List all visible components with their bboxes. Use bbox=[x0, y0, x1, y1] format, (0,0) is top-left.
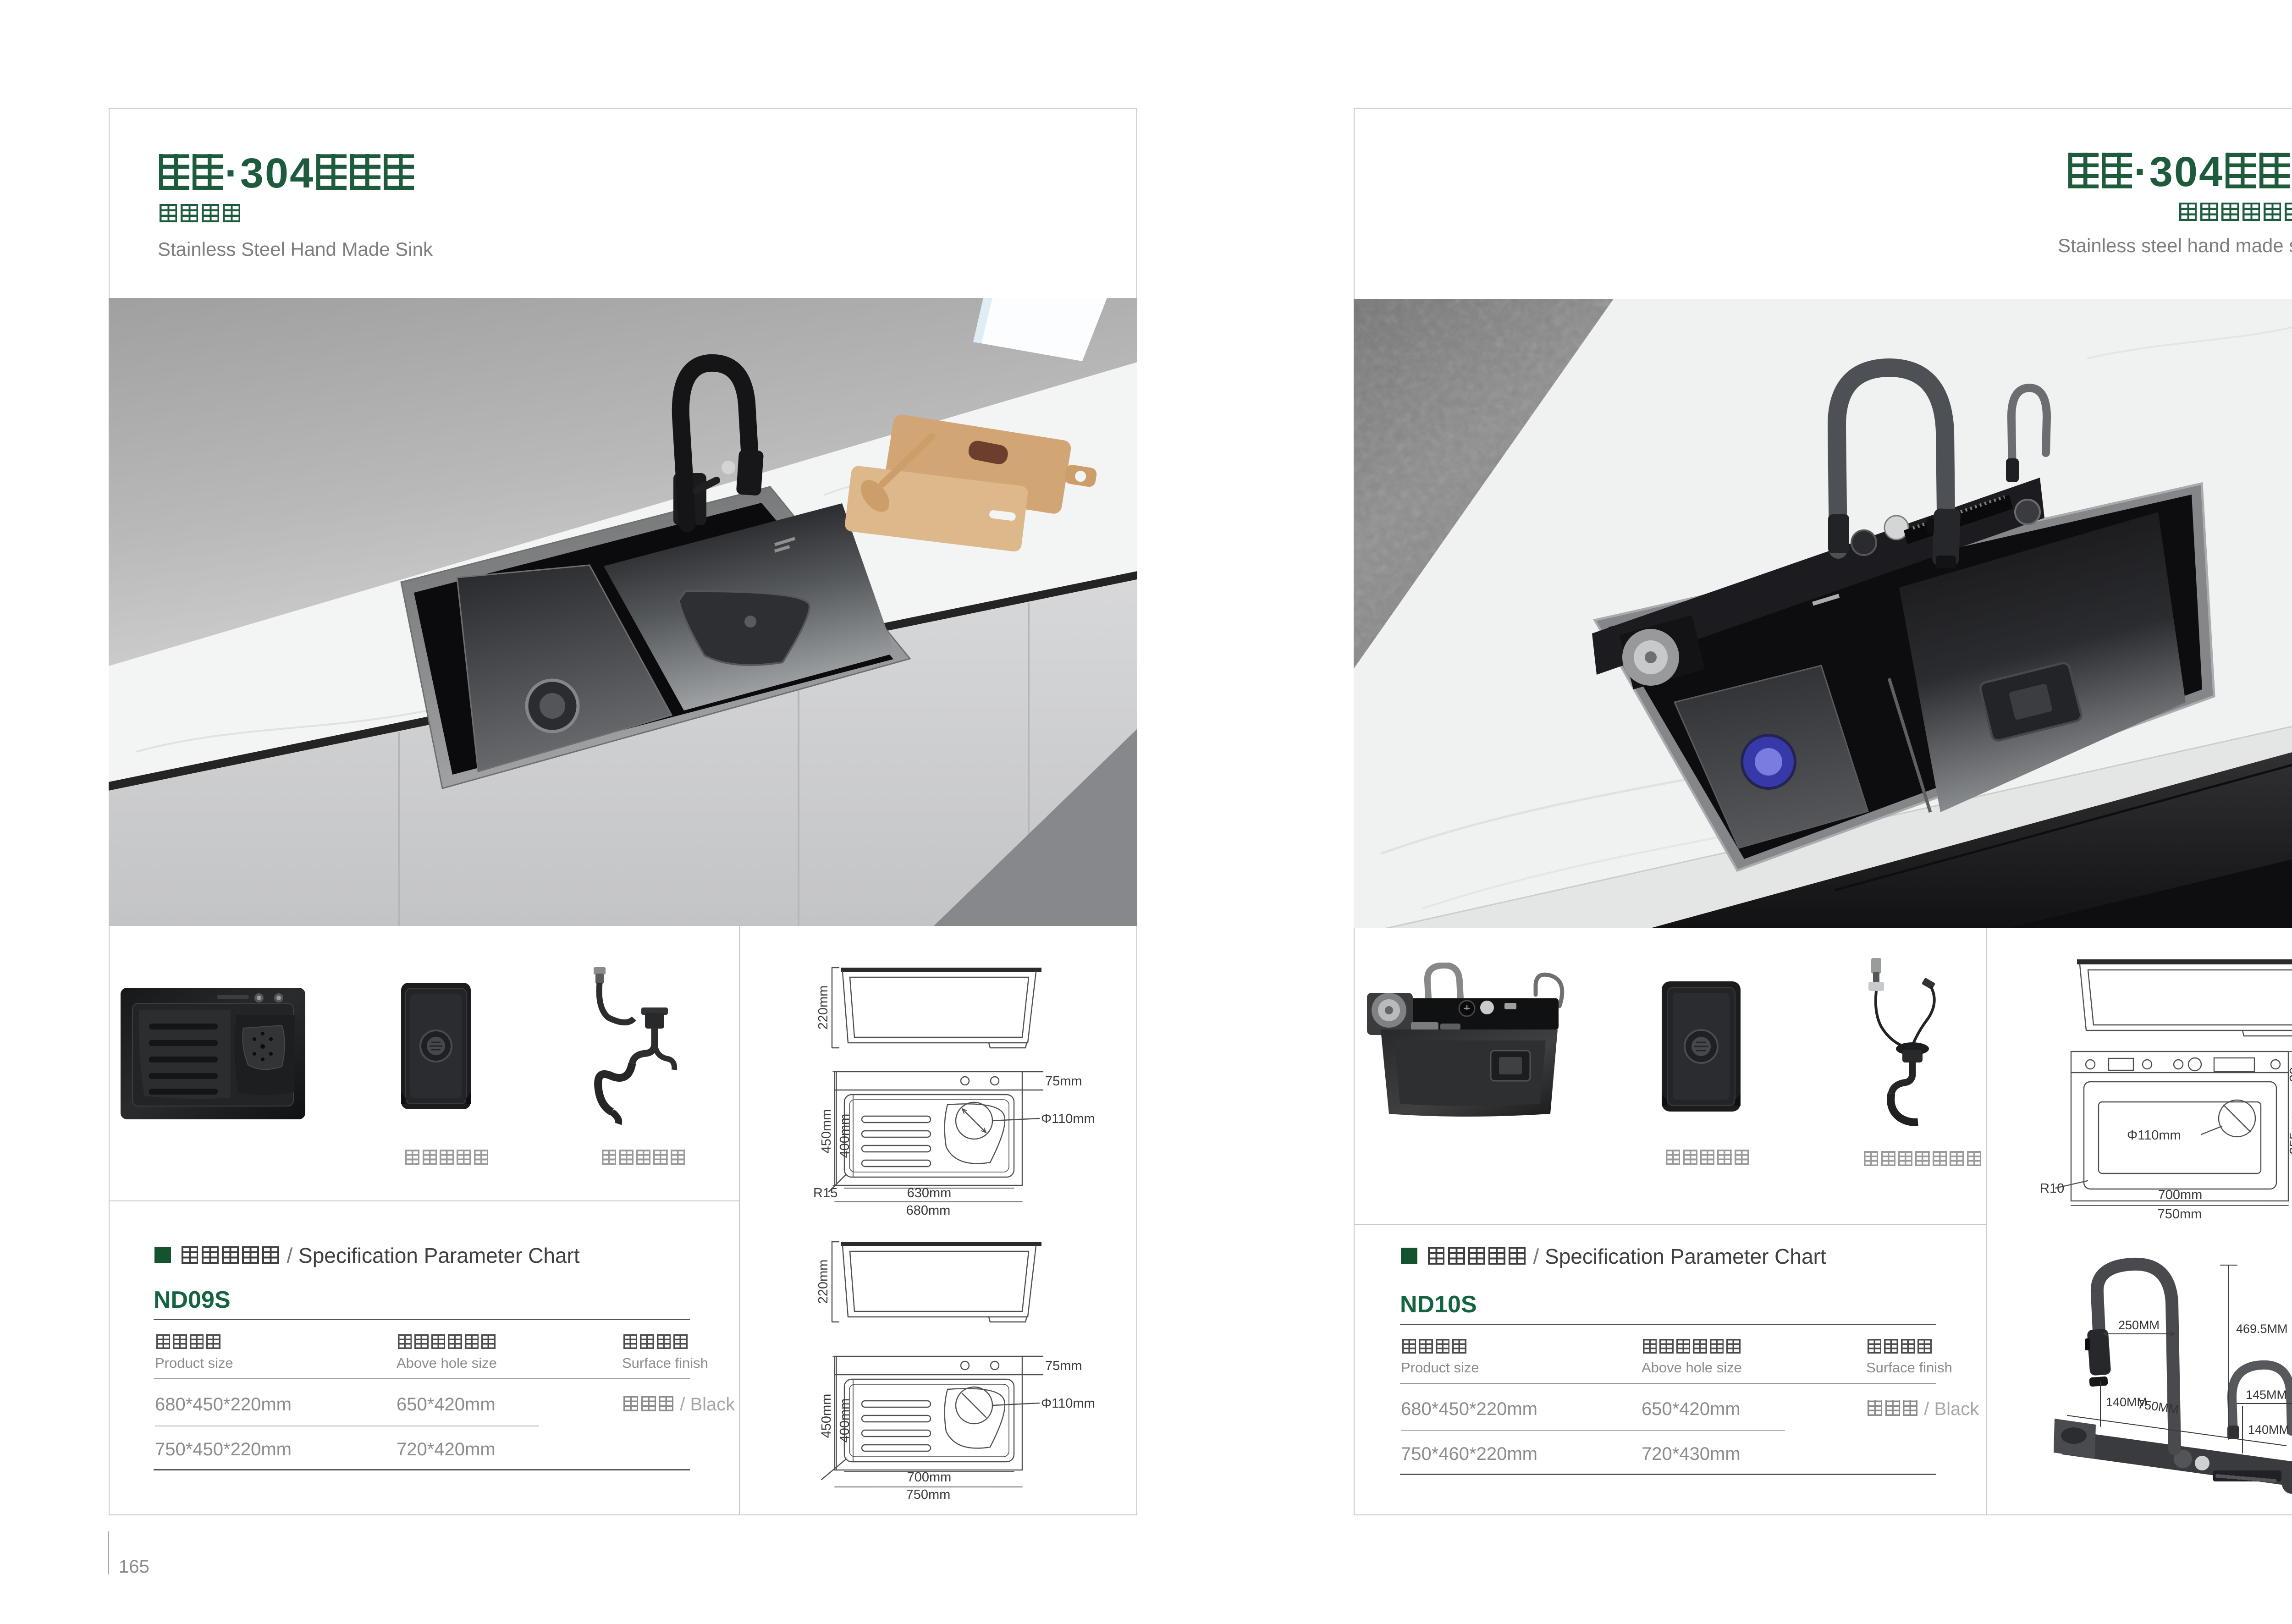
svg-text:145MM: 145MM bbox=[2246, 1388, 2287, 1402]
svg-text:400mm: 400mm bbox=[837, 1114, 852, 1158]
svg-text:630mm: 630mm bbox=[907, 1186, 952, 1200]
svg-text:75mm: 75mm bbox=[1045, 1074, 1082, 1089]
svg-text:250MM: 250MM bbox=[2118, 1318, 2160, 1332]
svg-text:Φ110mm: Φ110mm bbox=[1041, 1112, 1095, 1126]
svg-text:R15: R15 bbox=[813, 1186, 837, 1200]
svg-text:Φ110mm: Φ110mm bbox=[1041, 1396, 1095, 1411]
svg-text:750mm: 750mm bbox=[2158, 1207, 2202, 1222]
svg-text:750mm: 750mm bbox=[906, 1487, 951, 1502]
svg-text:700mm: 700mm bbox=[2158, 1188, 2203, 1202]
svg-text:680mm: 680mm bbox=[906, 1203, 951, 1218]
svg-text:400mm: 400mm bbox=[837, 1398, 852, 1443]
svg-text:220mm: 220mm bbox=[816, 1260, 831, 1304]
svg-text:450mm: 450mm bbox=[819, 1394, 834, 1438]
svg-text:140MM: 140MM bbox=[2248, 1423, 2289, 1437]
svg-text:Φ110mm: Φ110mm bbox=[2127, 1128, 2181, 1143]
svg-text:80mm: 80mm bbox=[2287, 1045, 2292, 1082]
svg-text:700mm: 700mm bbox=[907, 1470, 952, 1485]
svg-text:355mm: 355mm bbox=[2287, 1110, 2292, 1155]
svg-text:450mm: 450mm bbox=[819, 1109, 834, 1154]
svg-text:R10: R10 bbox=[2040, 1181, 2064, 1196]
svg-text:75mm: 75mm bbox=[1045, 1359, 1082, 1373]
svg-text:220mm: 220mm bbox=[816, 985, 831, 1030]
svg-text:469.5MM: 469.5MM bbox=[2236, 1322, 2288, 1336]
